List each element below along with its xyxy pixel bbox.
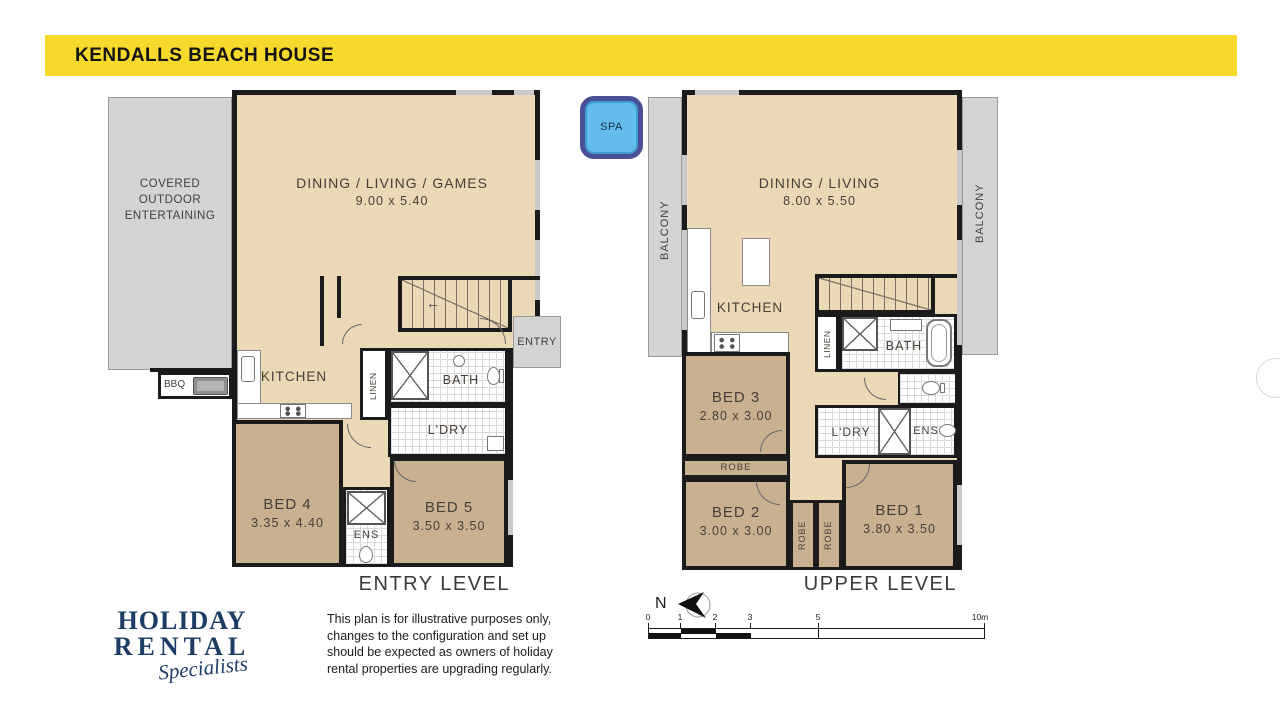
room-dims: 9.00 x 5.40	[282, 194, 502, 208]
north-label: N	[655, 595, 667, 613]
room-name: BED 5 3.50 x 3.50	[394, 499, 504, 533]
window	[957, 150, 962, 205]
wc-room	[898, 372, 957, 405]
room-name: DINING / LIVING / GAMES	[282, 175, 502, 191]
bbq-label: BBQ	[164, 379, 185, 390]
toilet-tank-icon	[940, 383, 945, 393]
laundry-room: L'DRY	[388, 405, 508, 457]
bed2-dims: 3.00 x 3.00	[686, 524, 786, 538]
room-name: BED 4 3.35 x 4.40	[236, 496, 339, 530]
bathtub-inner	[931, 324, 947, 362]
scale-midtick	[818, 629, 819, 638]
scale-label: 0	[646, 612, 651, 622]
robe-room: ROBE	[790, 500, 816, 570]
linen-label: LINEN	[368, 357, 378, 415]
bathtub-icon	[926, 319, 952, 367]
bath-label: BATH	[431, 373, 491, 387]
wall	[535, 90, 540, 352]
toilet-icon	[939, 424, 956, 437]
scale-label: 3	[748, 612, 753, 622]
window	[508, 480, 513, 535]
laundry-label: L'DRY	[413, 423, 483, 437]
edge-circle-artifact	[1256, 358, 1280, 398]
covered-outdoor-label: COVERED OUTDOOR ENTERTAINING	[109, 176, 231, 224]
sink-icon	[691, 291, 705, 319]
bbq-area: BBQ	[158, 372, 232, 399]
bed4-room: BED 4 3.35 x 4.40	[232, 420, 343, 567]
bed3-dims: 2.80 x 3.00	[686, 409, 786, 423]
window	[535, 160, 540, 210]
bed3-name: BED 3	[686, 389, 786, 406]
scale-segment	[681, 629, 716, 634]
room-dims: 8.00 x 5.50	[742, 194, 897, 208]
disclaimer-text: This plan is for illustrative purposes o…	[327, 611, 562, 677]
bath-room: BATH	[839, 314, 957, 372]
wall	[232, 90, 540, 95]
window	[456, 90, 492, 95]
dining-living-room: DINING / LIVING 8.00 x 5.50	[742, 175, 897, 208]
scale-bar-track	[648, 628, 985, 639]
kitchen-counter	[237, 350, 261, 405]
kitchen-label: KITCHEN	[710, 300, 790, 315]
spa-label: SPA	[585, 101, 638, 154]
toilet-icon	[359, 546, 373, 563]
linen-label: LINEN	[822, 319, 832, 369]
entry-label: ENTRY	[514, 317, 560, 367]
balcony-left: BALCONY	[648, 97, 682, 357]
bed4-name: BED 4	[236, 496, 339, 513]
scale-segment	[716, 633, 751, 638]
ensuite-room: ENS	[343, 487, 390, 567]
wall	[512, 276, 540, 280]
floor-plan-page: KENDALLS BEACH HOUSE COVERED OUTDOOR ENT…	[0, 0, 1280, 720]
bed2-name: BED 2	[686, 504, 786, 521]
wall	[337, 276, 341, 318]
robe-room: ROBE	[682, 458, 790, 478]
wall	[320, 276, 324, 346]
room-name: BED 1 3.80 x 3.50	[846, 502, 953, 536]
window	[695, 90, 739, 95]
entry-level-caption: ENTRY LEVEL	[310, 573, 510, 596]
dining-living-games-room: DINING / LIVING / GAMES 9.00 x 5.40	[282, 175, 502, 208]
bed4-dims: 3.35 x 4.40	[236, 516, 339, 530]
scale-label: 1	[678, 612, 683, 622]
robe-label: ROBE	[823, 511, 833, 559]
staircase	[815, 274, 935, 314]
bath-room: BATH	[388, 348, 508, 405]
balcony-right-label: BALCONY	[974, 166, 986, 261]
bed1-dims: 3.80 x 3.50	[846, 522, 953, 536]
linen-room: LINEN	[360, 348, 388, 420]
room-name: BED 2 3.00 x 3.00	[686, 504, 786, 538]
stair-direction-arrow-icon: ←	[426, 295, 440, 311]
page-title: KENDALLS BEACH HOUSE	[45, 35, 1237, 76]
kitchen-label: KITCHEN	[253, 369, 335, 384]
toilet-icon	[922, 381, 940, 395]
robe-label: ROBE	[797, 511, 807, 559]
toilet-tank-icon	[499, 369, 504, 383]
window	[514, 90, 534, 95]
window	[682, 155, 687, 205]
scale-segment	[649, 633, 681, 638]
window	[535, 240, 540, 300]
room-name: BED 3 2.80 x 3.00	[686, 389, 786, 423]
sink-icon	[453, 355, 465, 367]
laundry-ensuite-block: L'DRY ENS	[815, 405, 957, 458]
window	[957, 485, 962, 545]
robe-room: ROBE	[816, 500, 842, 570]
laundry-tub-icon	[487, 436, 504, 451]
balcony-right: BALCONY	[962, 97, 998, 355]
shower-icon	[347, 491, 386, 525]
shower-icon	[878, 408, 911, 455]
scale-label: 5	[816, 612, 821, 622]
sink-icon	[241, 356, 255, 382]
logo-line1: HOLIDAY	[112, 608, 252, 634]
title-banner: KENDALLS BEACH HOUSE	[45, 35, 1237, 76]
shower-icon	[391, 351, 429, 400]
wall	[935, 274, 957, 278]
bbq-icon	[193, 377, 228, 395]
vanity-icon	[890, 319, 922, 331]
linen-room: LINEN	[815, 314, 839, 372]
spa: SPA	[580, 96, 643, 159]
ensuite-label: ENS	[346, 529, 387, 541]
covered-outdoor-area: COVERED OUTDOOR ENTERTAINING	[108, 97, 232, 370]
bed1-name: BED 1	[846, 502, 953, 519]
bed5-dims: 3.50 x 3.50	[394, 519, 504, 533]
holiday-rental-logo: HOLIDAY RENTAL Specialists	[112, 608, 252, 681]
upper-level-caption: UPPER LEVEL	[757, 573, 957, 596]
entry-porch: ENTRY	[513, 316, 561, 368]
stove-icon	[280, 404, 306, 418]
scale-label: 2	[713, 612, 718, 622]
robe-label: ROBE	[685, 461, 787, 475]
bed5-name: BED 5	[394, 499, 504, 516]
room-name: DINING / LIVING	[742, 175, 897, 191]
stove-icon	[714, 334, 740, 352]
scale-label: 10m	[972, 612, 989, 622]
ensuite-label: ENS	[910, 425, 942, 437]
kitchen-island	[742, 238, 770, 286]
kitchen-counter	[687, 228, 711, 356]
laundry-label: L'DRY	[820, 425, 882, 439]
window	[957, 240, 962, 345]
balcony-left-label: BALCONY	[659, 183, 671, 278]
scale-bar: 0 1 2 3 5 10m	[648, 612, 988, 640]
